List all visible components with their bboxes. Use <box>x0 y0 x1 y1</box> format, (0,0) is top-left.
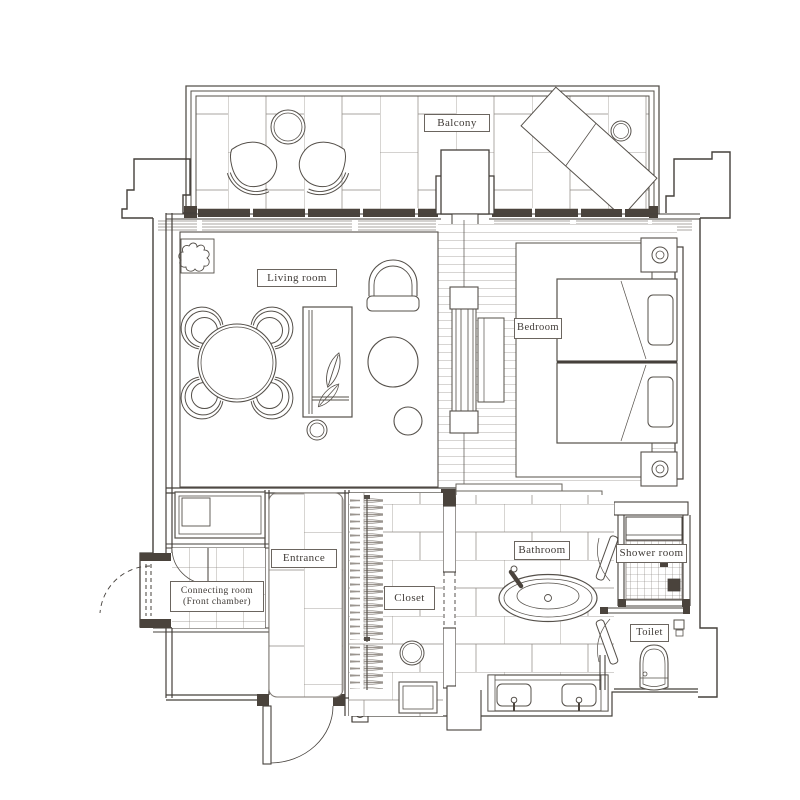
balcony-round-table-symbol <box>271 110 305 144</box>
stool-symbol <box>307 420 327 440</box>
bathroom-area <box>456 495 619 711</box>
room-label-shower-room: Shower room <box>616 544 687 563</box>
room-label-text: Closet <box>394 592 425 605</box>
window-glazing-band <box>198 209 438 217</box>
floor-plan-page: Balcony Living room Bedroom Entrance Con… <box>0 0 800 800</box>
shower-north-wall <box>614 502 688 515</box>
nightstand-with-lamp-symbol <box>641 452 677 486</box>
room-label-living-room: Living room <box>257 269 337 287</box>
room-label-text: Bathroom <box>518 544 565 557</box>
room-label-connecting-room: Connecting room (Front chamber) <box>170 581 264 612</box>
shower-drain <box>668 579 680 591</box>
round-chair-symbol <box>368 337 418 387</box>
sofa-symbol <box>303 307 352 417</box>
entrance-area <box>269 493 343 697</box>
nightstand-with-lamp-symbol <box>641 238 677 272</box>
room-label-toilet: Toilet <box>630 624 669 642</box>
vanity-sinks-symbol <box>488 675 608 711</box>
room-label-bathroom: Bathroom <box>514 541 570 560</box>
shower-bench-symbol <box>626 517 682 540</box>
side-table-symbol <box>394 407 422 435</box>
closet-stool-symbol <box>400 641 424 665</box>
room-label-balcony: Balcony <box>424 114 490 132</box>
balcony-area <box>186 86 659 217</box>
room-label-text: (Front chamber) <box>183 597 251 608</box>
closet-ottoman-symbol <box>399 682 437 713</box>
room-label-text: Shower room <box>620 547 684 560</box>
room-label-text: Toilet <box>636 627 663 639</box>
balcony-side-table-symbol <box>611 121 631 141</box>
room-label-text: Entrance <box>283 552 325 565</box>
window-glazing-band <box>492 209 650 217</box>
bedside-cabinet-symbol <box>478 318 504 402</box>
room-label-text: Balcony <box>437 117 476 130</box>
room-label-bedroom: Bedroom <box>514 318 562 339</box>
entrance-floor <box>269 493 343 697</box>
twin-bed-symbol <box>557 279 677 443</box>
room-label-text: Connecting room <box>181 586 253 597</box>
luggage-room <box>175 492 265 538</box>
toilet-bowl-symbol <box>640 645 668 690</box>
room-label-closet: Closet <box>384 586 435 610</box>
passage-door-leaf <box>447 686 481 730</box>
room-label-text: Living room <box>267 272 327 285</box>
floor-plan-drawing <box>0 0 800 800</box>
room-label-text: Bedroom <box>517 322 559 334</box>
luggage-cabinet-symbol <box>175 492 265 538</box>
room-label-entrance: Entrance <box>271 549 337 568</box>
